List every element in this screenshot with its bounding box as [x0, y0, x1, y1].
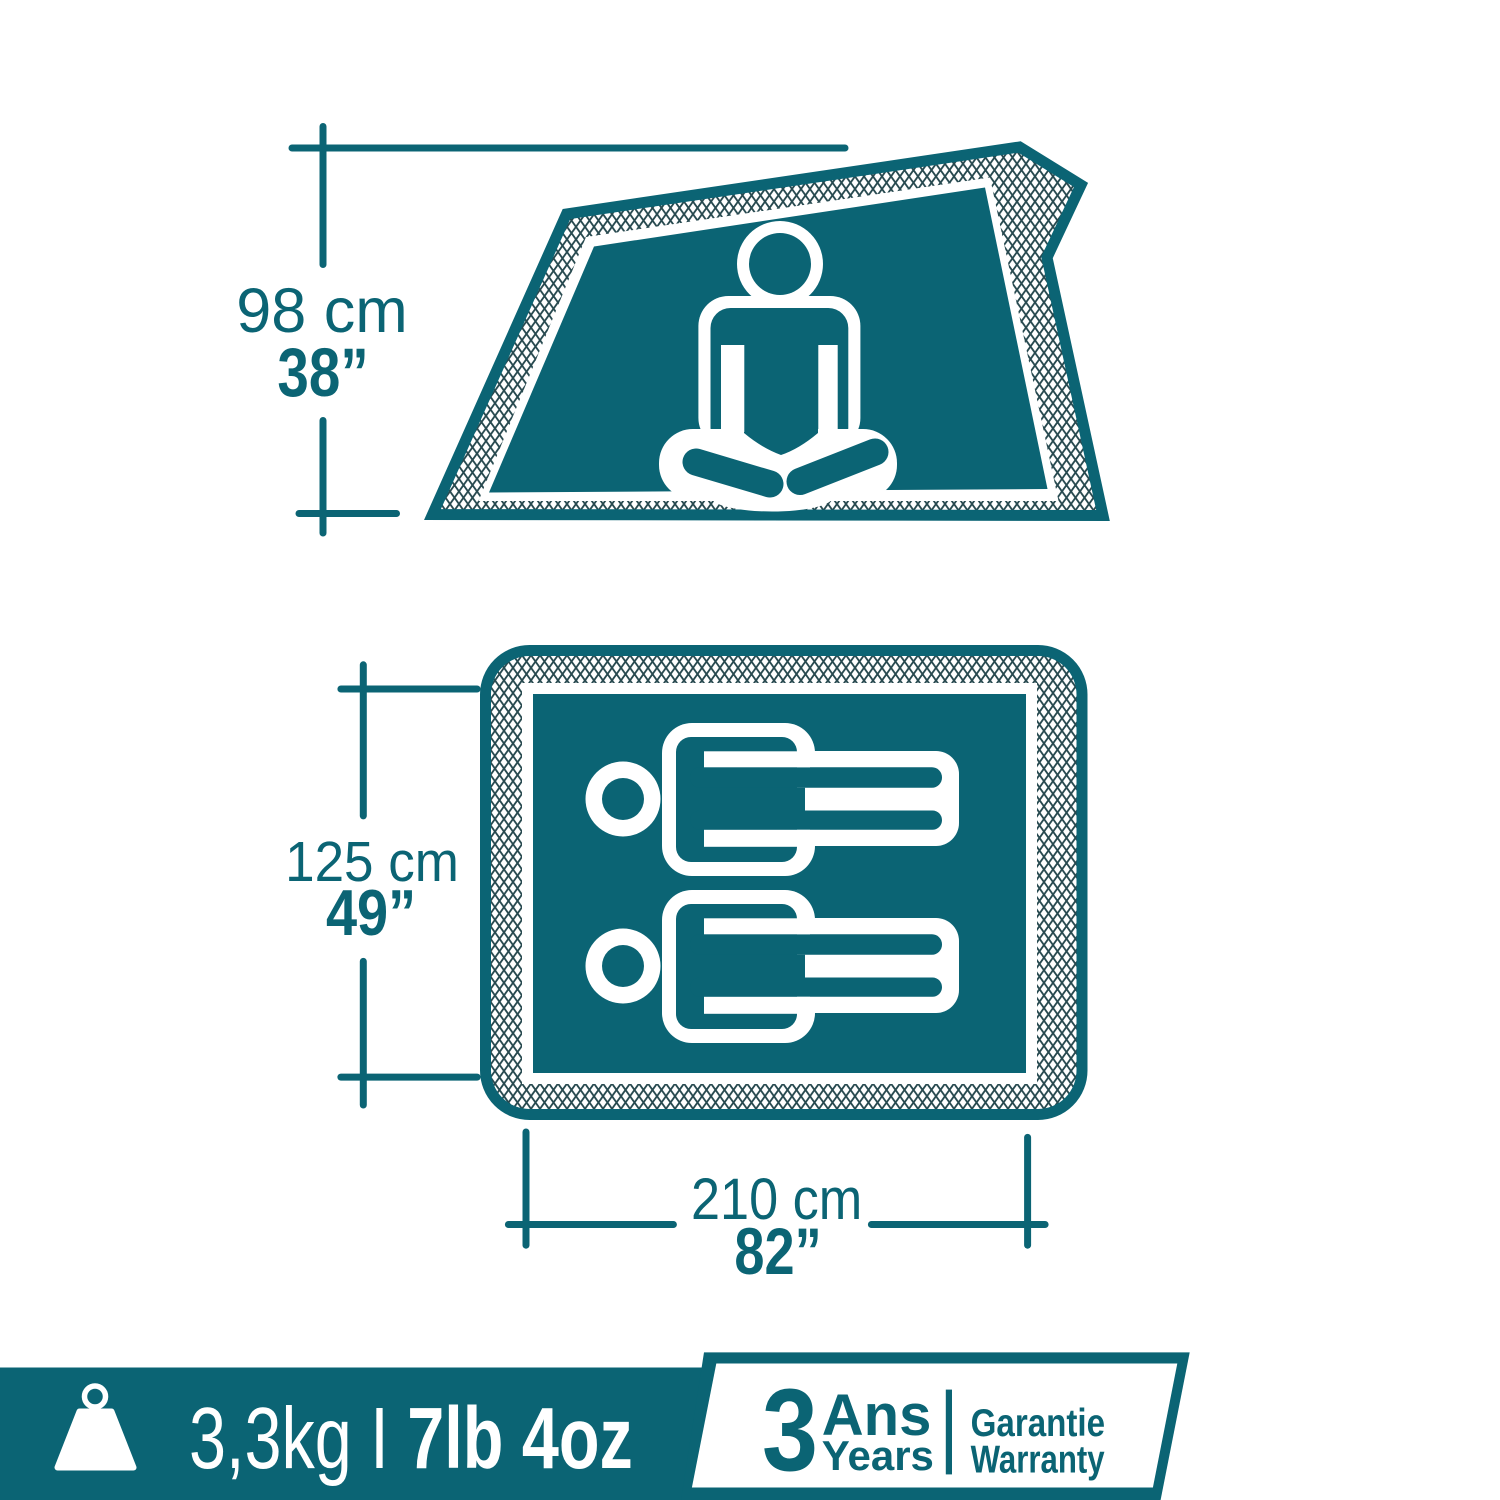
svg-text:Warranty: Warranty: [971, 1438, 1105, 1481]
svg-text:3,3kg I 7lb 4oz: 3,3kg I 7lb 4oz: [189, 1390, 633, 1487]
svg-text:Years: Years: [822, 1432, 934, 1479]
svg-text:38”: 38”: [277, 335, 368, 412]
svg-text:3: 3: [762, 1365, 818, 1496]
svg-text:49”: 49”: [326, 876, 416, 949]
svg-text:82”: 82”: [734, 1214, 821, 1288]
